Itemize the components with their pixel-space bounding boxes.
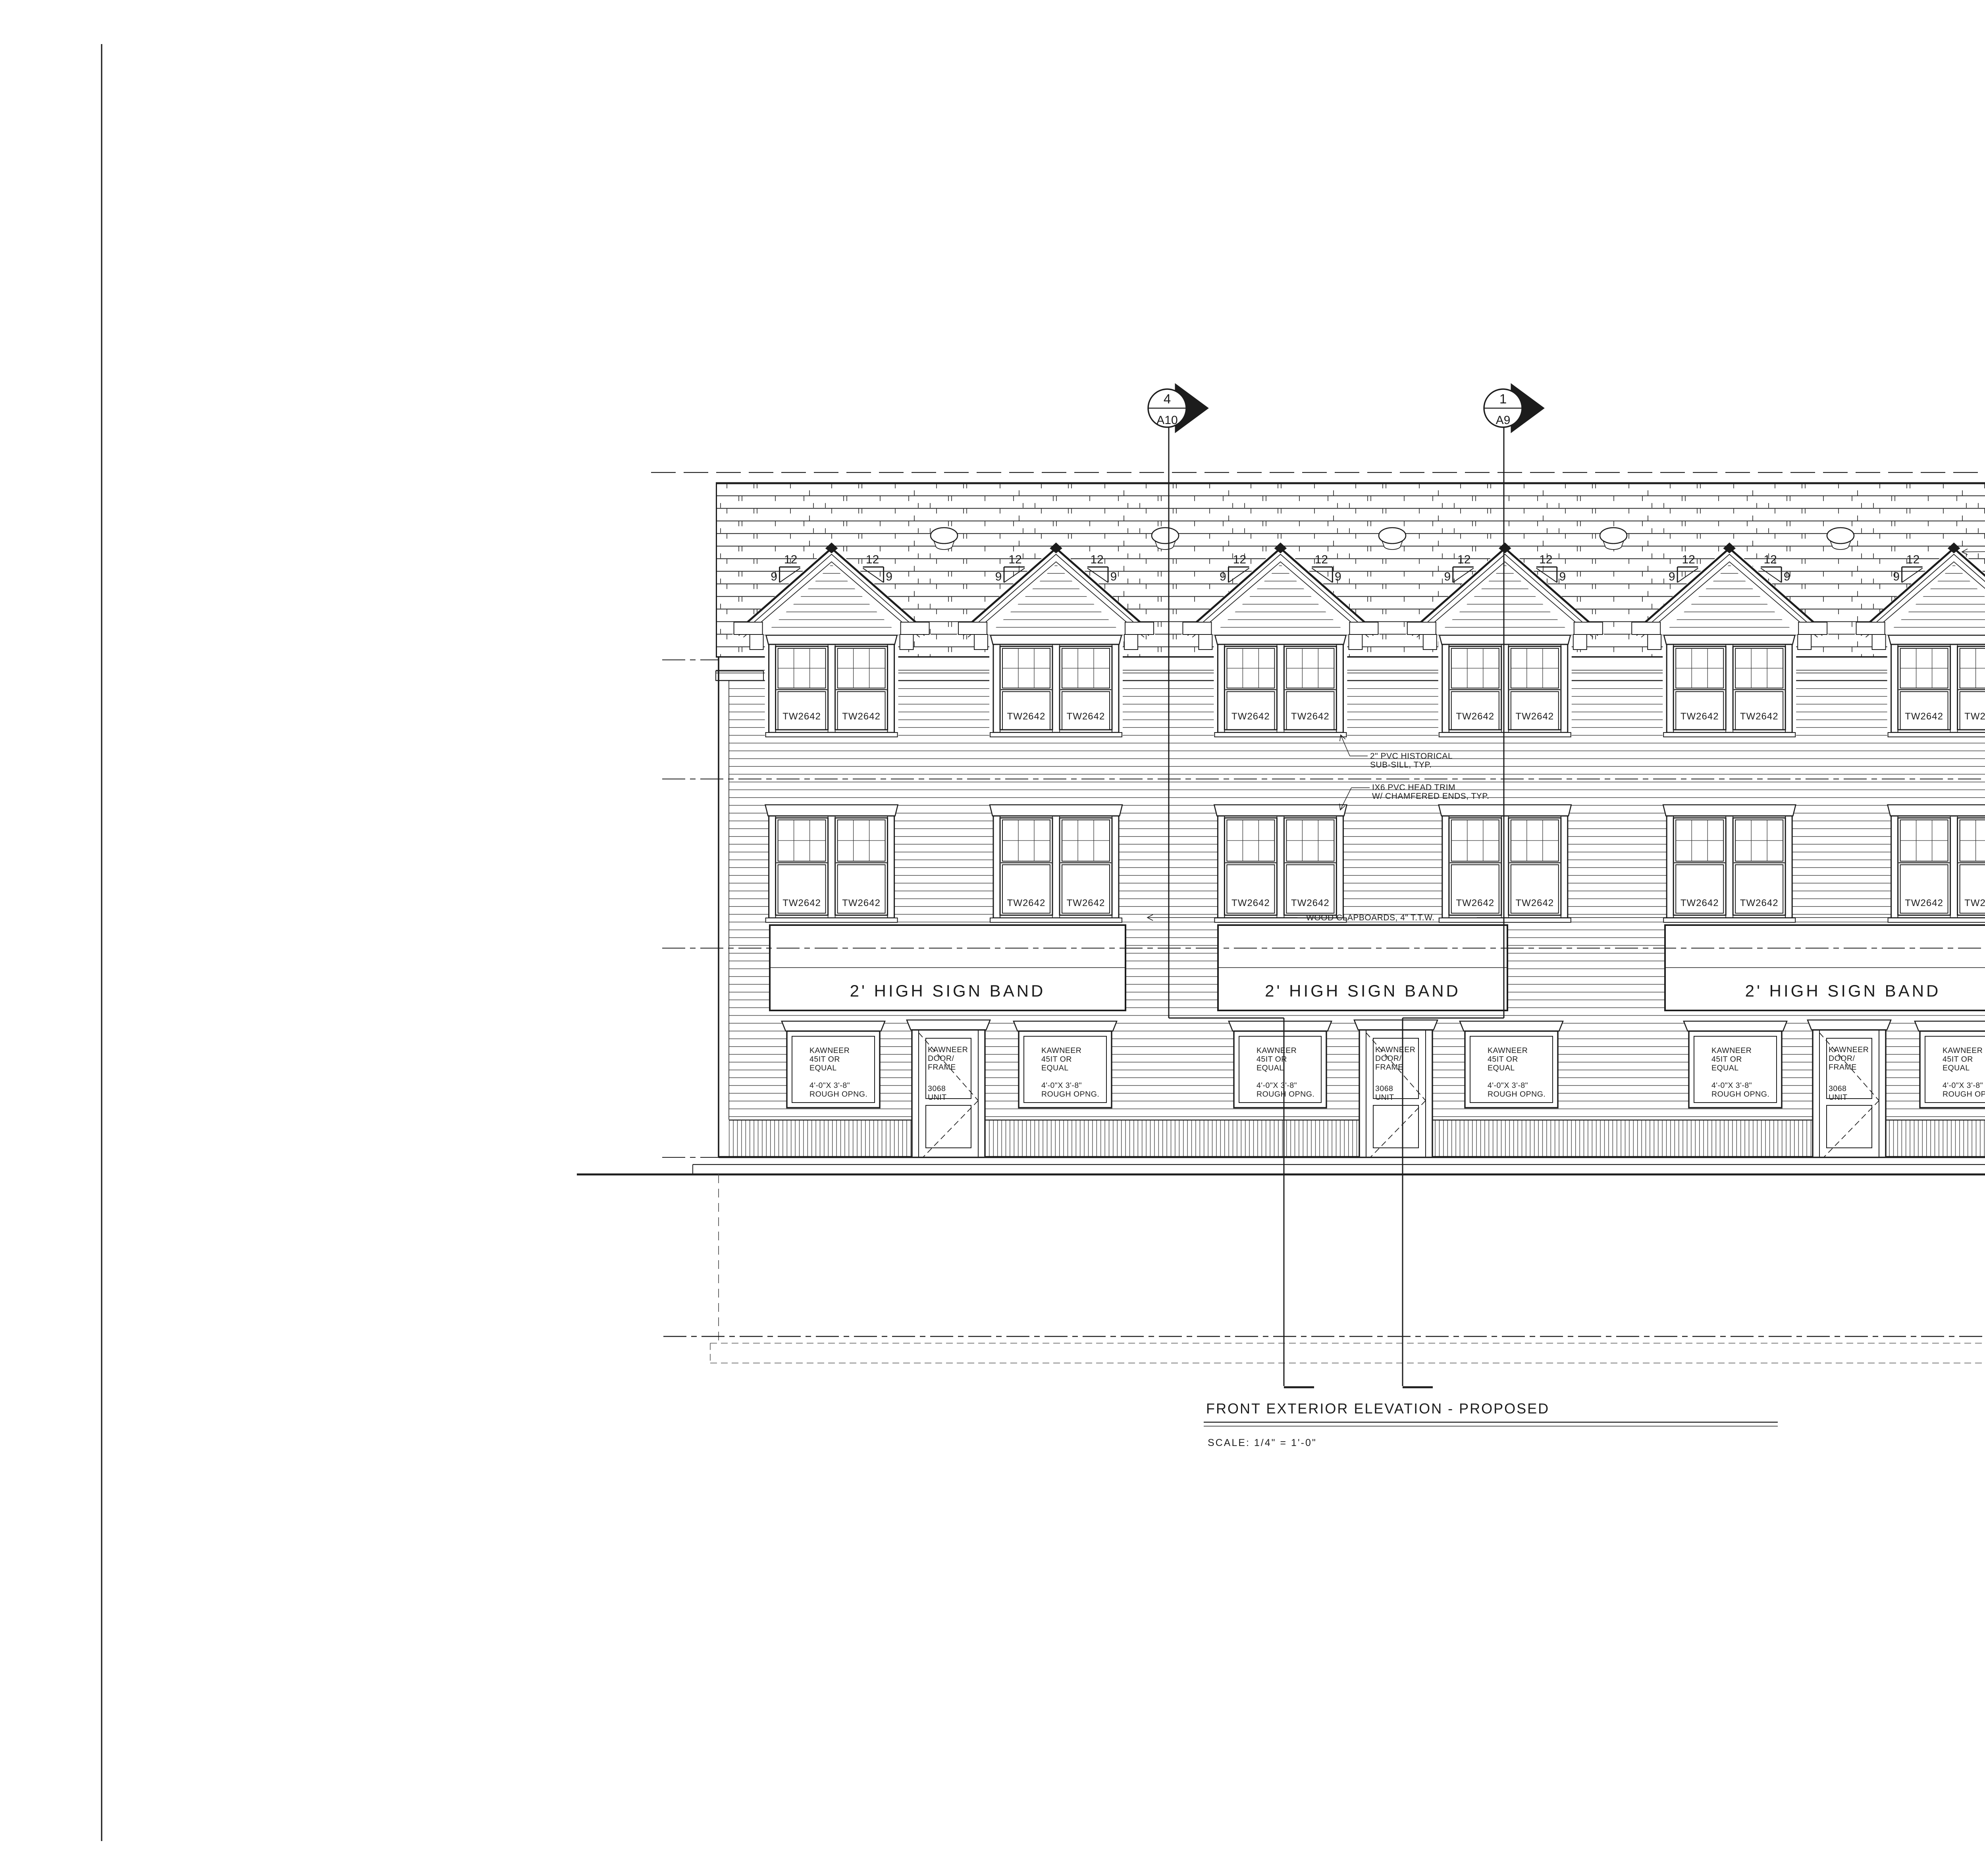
svg-text:ROUGH OPNG.: ROUGH OPNG. <box>1488 1090 1546 1099</box>
svg-text:TW2642: TW2642 <box>1291 898 1330 908</box>
svg-text:EQUAL: EQUAL <box>1711 1064 1739 1072</box>
svg-text:9: 9 <box>995 570 1002 583</box>
svg-text:TW2642: TW2642 <box>1681 711 1719 722</box>
svg-text:2' HIGH SIGN BAND: 2' HIGH SIGN BAND <box>1745 981 1941 1000</box>
svg-text:ROUGH OPNG.: ROUGH OPNG. <box>809 1090 867 1099</box>
svg-text:UNIT: UNIT <box>928 1093 947 1102</box>
svg-text:45IT OR: 45IT OR <box>1711 1055 1742 1064</box>
svg-text:2' HIGH SIGN BAND: 2' HIGH SIGN BAND <box>1265 981 1461 1000</box>
svg-text:12: 12 <box>1457 553 1470 566</box>
svg-text:KAWNEER: KAWNEER <box>1829 1045 1869 1054</box>
svg-text:12: 12 <box>1906 553 1919 566</box>
svg-text:DOOR/: DOOR/ <box>1375 1054 1402 1063</box>
svg-text:12: 12 <box>1539 553 1552 566</box>
svg-text:4'-0"X 3'-8": 4'-0"X 3'-8" <box>1943 1081 1983 1090</box>
svg-text:45IT OR: 45IT OR <box>809 1055 840 1064</box>
svg-text:4'-0"X 3'-8": 4'-0"X 3'-8" <box>1711 1081 1752 1090</box>
svg-text:TW2642: TW2642 <box>1905 711 1943 722</box>
svg-text:TW2642: TW2642 <box>1905 898 1943 908</box>
svg-text:4'-0"X 3'-8": 4'-0"X 3'-8" <box>1041 1081 1082 1090</box>
svg-text:EQUAL: EQUAL <box>809 1064 837 1072</box>
svg-text:9: 9 <box>1669 570 1675 583</box>
svg-text:4'-0"X 3'-8": 4'-0"X 3'-8" <box>809 1081 850 1090</box>
svg-text:FRAME: FRAME <box>1829 1063 1857 1072</box>
svg-text:FRAME: FRAME <box>928 1063 956 1072</box>
svg-text:9: 9 <box>771 570 777 583</box>
svg-text:FRONT EXTERIOR ELEVATION - PRO: FRONT EXTERIOR ELEVATION - PROPOSED <box>1206 1400 1549 1417</box>
svg-text:A9: A9 <box>1496 414 1511 427</box>
svg-text:12: 12 <box>1008 553 1021 566</box>
svg-text:45IT OR: 45IT OR <box>1943 1055 1973 1064</box>
svg-text:9: 9 <box>1110 570 1117 583</box>
svg-text:TW2642: TW2642 <box>1456 898 1494 908</box>
svg-text:KAWNEER: KAWNEER <box>809 1046 850 1055</box>
svg-text:12: 12 <box>1233 553 1246 566</box>
svg-text:SUB-SILL, TYP.: SUB-SILL, TYP. <box>1370 760 1432 769</box>
svg-text:TW2642: TW2642 <box>782 898 821 908</box>
svg-text:12: 12 <box>1315 553 1328 566</box>
svg-text:TW2642: TW2642 <box>1067 711 1105 722</box>
svg-text:KAWNEER: KAWNEER <box>1257 1046 1297 1055</box>
svg-text:TW2642: TW2642 <box>782 711 821 722</box>
svg-text:DOOR/: DOOR/ <box>1829 1054 1855 1063</box>
svg-text:TW2642: TW2642 <box>1231 711 1270 722</box>
svg-text:FRAME: FRAME <box>1375 1063 1403 1072</box>
svg-text:TW2642: TW2642 <box>1515 898 1554 908</box>
svg-text:TW2642: TW2642 <box>1067 898 1105 908</box>
svg-text:EQUAL: EQUAL <box>1488 1064 1515 1072</box>
svg-text:TW2642: TW2642 <box>1964 711 1985 722</box>
svg-text:KAWNEER: KAWNEER <box>1711 1046 1752 1055</box>
svg-text:KAWNEER: KAWNEER <box>1375 1045 1415 1054</box>
svg-text:12: 12 <box>1090 553 1103 566</box>
svg-text:12: 12 <box>1682 553 1695 566</box>
svg-text:TW2642: TW2642 <box>1964 898 1985 908</box>
svg-text:TW2642: TW2642 <box>842 711 881 722</box>
svg-text:TW2642: TW2642 <box>1681 898 1719 908</box>
svg-text:TW2642: TW2642 <box>1231 898 1270 908</box>
svg-text:TW2642: TW2642 <box>842 898 881 908</box>
svg-text:12: 12 <box>866 553 879 566</box>
svg-text:KAWNEER: KAWNEER <box>1943 1046 1983 1055</box>
svg-text:TW2642: TW2642 <box>1007 711 1046 722</box>
svg-text:EQUAL: EQUAL <box>1943 1064 1970 1072</box>
svg-text:ROUGH OPNG.: ROUGH OPNG. <box>1041 1090 1099 1099</box>
svg-text:UNIT: UNIT <box>1829 1093 1848 1102</box>
svg-text:KAWNEER: KAWNEER <box>928 1045 968 1054</box>
svg-text:IX6 PVC HEAD TRIM: IX6 PVC HEAD TRIM <box>1372 783 1455 792</box>
svg-text:TW2642: TW2642 <box>1515 711 1554 722</box>
svg-text:ROUGH OPNG.: ROUGH OPNG. <box>1257 1090 1314 1099</box>
svg-text:KAWNEER: KAWNEER <box>1488 1046 1528 1055</box>
svg-text:EQUAL: EQUAL <box>1041 1064 1069 1072</box>
svg-text:9: 9 <box>1335 570 1341 583</box>
svg-text:A10: A10 <box>1156 414 1178 427</box>
svg-text:W/ CHAMFERED ENDS, TYP.: W/ CHAMFERED ENDS, TYP. <box>1372 792 1489 801</box>
svg-text:3068: 3068 <box>928 1084 946 1093</box>
svg-text:3068: 3068 <box>1829 1084 1846 1093</box>
svg-text:2" PVC HISTORICAL: 2" PVC HISTORICAL <box>1370 752 1453 761</box>
svg-text:TW2642: TW2642 <box>1740 711 1779 722</box>
svg-text:1: 1 <box>1499 391 1507 406</box>
svg-text:UNIT: UNIT <box>1375 1093 1394 1102</box>
svg-text:4'-0"X 3'-8": 4'-0"X 3'-8" <box>1257 1081 1297 1090</box>
svg-text:ROUGH OPNG.: ROUGH OPNG. <box>1711 1090 1769 1099</box>
svg-text:TW2642: TW2642 <box>1740 898 1779 908</box>
svg-text:12: 12 <box>1764 553 1777 566</box>
svg-text:45IT OR: 45IT OR <box>1257 1055 1287 1064</box>
svg-text:9: 9 <box>886 570 892 583</box>
svg-text:9: 9 <box>1893 570 1900 583</box>
svg-text:9: 9 <box>1444 570 1451 583</box>
svg-text:12: 12 <box>784 553 797 566</box>
svg-text:KAWNEER: KAWNEER <box>1041 1046 1081 1055</box>
svg-text:2' HIGH SIGN BAND: 2' HIGH SIGN BAND <box>850 981 1046 1000</box>
svg-text:4: 4 <box>1164 391 1171 406</box>
svg-text:9: 9 <box>1559 570 1566 583</box>
svg-text:4'-0"X 3'-8": 4'-0"X 3'-8" <box>1488 1081 1528 1090</box>
svg-text:45IT OR: 45IT OR <box>1488 1055 1518 1064</box>
svg-text:3068: 3068 <box>1375 1084 1393 1093</box>
svg-text:DOOR/: DOOR/ <box>928 1054 954 1063</box>
svg-text:TW2642: TW2642 <box>1456 711 1494 722</box>
svg-text:TW2642: TW2642 <box>1007 898 1046 908</box>
svg-text:9: 9 <box>1784 570 1790 583</box>
svg-text:ROUGH OPNG.: ROUGH OPNG. <box>1943 1090 1985 1099</box>
svg-text:9: 9 <box>1220 570 1226 583</box>
svg-text:TW2642: TW2642 <box>1291 711 1330 722</box>
svg-text:45IT OR: 45IT OR <box>1041 1055 1072 1064</box>
svg-text:SCALE: 1/4" = 1'-0": SCALE: 1/4" = 1'-0" <box>1208 1437 1317 1448</box>
svg-text:WOOD CLAPBOARDS, 4" T.T.W.: WOOD CLAPBOARDS, 4" T.T.W. <box>1306 913 1434 922</box>
svg-text:EQUAL: EQUAL <box>1257 1064 1284 1072</box>
